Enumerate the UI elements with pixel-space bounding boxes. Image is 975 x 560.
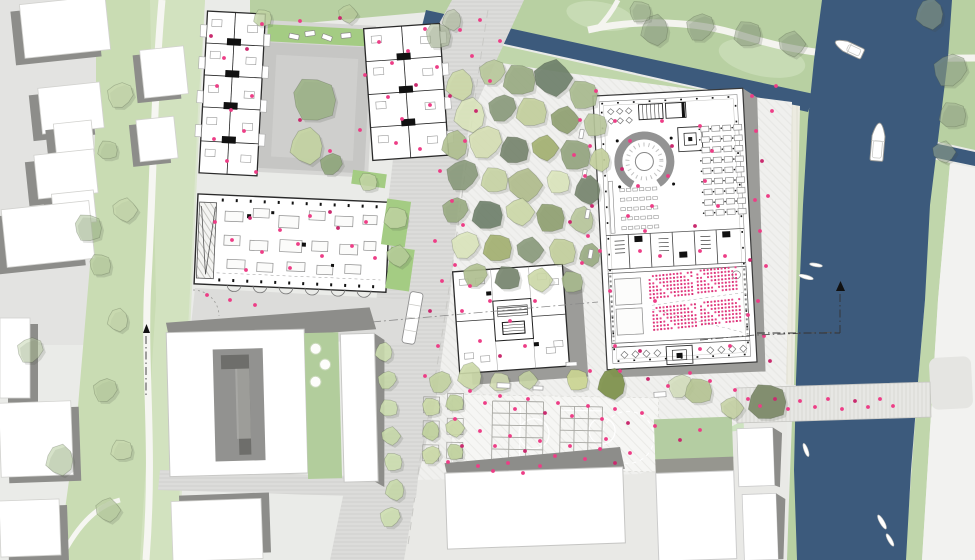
person-dot [498,394,502,398]
auditorium-seat [711,279,713,281]
auditorium-seat [721,300,723,302]
person-dot [428,309,432,313]
person-dot [733,388,737,392]
auditorium-seat [694,314,696,316]
person-dot [390,61,394,65]
person-dot [468,284,472,288]
auditorium-seat [667,324,669,326]
riverside-building-b [742,493,778,560]
person-dot [463,139,467,143]
person-dot [212,137,216,141]
auditorium-seat [649,279,651,281]
person-dot [660,119,664,123]
auditorium-seat [684,290,686,292]
auditorium-seat [700,270,702,272]
person-dot [213,220,217,224]
auditorium-seat [707,276,709,278]
auditorium-seat [718,282,720,284]
person-dot [468,389,472,393]
auditorium-seat [725,314,727,316]
auditorium-seat [721,310,723,312]
auditorium-seat [653,293,655,295]
person-dot [693,224,697,228]
market-hall [194,194,390,298]
person-dot [640,411,644,415]
auditorium-seat [729,288,731,290]
auditorium-seat [692,325,694,327]
person-dot [491,469,495,473]
auditorium-seat [701,291,703,293]
study-desk [701,137,709,143]
person-dot [373,256,377,260]
auditorium-seat [674,291,676,293]
auditorium-seat [663,285,665,287]
auditorium-seat [676,305,678,307]
bench [566,362,577,367]
person-dot [474,109,478,113]
person-dot [878,397,882,401]
auditorium-seat [684,286,686,288]
auditorium-seat [680,272,682,274]
auditorium-seat [704,284,706,286]
auditorium-seat [721,267,723,269]
study-desk [713,146,721,152]
person-dot [626,214,630,218]
study-desk [713,157,721,163]
auditorium-seat [656,278,658,280]
auditorium-seat [695,325,697,327]
cultural-building [593,88,772,380]
auditorium-seat [670,316,672,318]
person-dot [653,424,657,428]
auditorium-seat [684,311,686,313]
auditorium-seat [656,293,658,295]
auditorium-seat [715,318,717,320]
auditorium-seat [691,293,693,295]
person-dot [493,444,497,448]
auditorium-seat [666,309,668,311]
auditorium-seat [676,276,678,278]
auditorium-seat [704,312,706,314]
person-dot [414,83,418,87]
person-dot [336,226,340,230]
person-dot [750,94,754,98]
auditorium-seat [678,326,680,328]
auditorium-seat [696,277,698,279]
green-roof-lower [656,471,737,560]
auditorium-seat [725,321,727,323]
person-dot [453,263,457,267]
auditorium-seat [701,323,703,325]
person-dot [698,124,702,128]
auditorium-seat [687,279,689,281]
person-dot [568,220,572,224]
auditorium-seat [663,321,665,323]
auditorium-seat [724,303,726,305]
person-dot [583,174,587,178]
person-dot [670,144,674,148]
auditorium-seat [714,283,716,285]
person-dot [228,298,232,302]
auditorium-seat [735,309,737,311]
auditorium-seat [694,307,696,309]
study-desk [737,198,745,204]
person-dot [666,384,670,388]
auditorium-seat [697,284,699,286]
auditorium-seat [670,291,672,293]
auditorium-seat [681,323,683,325]
auditorium-seat [677,287,679,289]
auditorium-seat [688,325,690,327]
auditorium-seat [656,289,658,291]
auditorium-seat [711,322,713,324]
auditorium-seat [681,290,683,292]
person-dot [260,22,264,26]
auditorium-seat [734,266,736,268]
auditorium-seat [660,317,662,319]
person-dot [538,439,542,443]
auditorium-seat [653,318,655,320]
auditorium-seat [721,278,723,280]
auditorium-seat [708,290,710,292]
auditorium-seat [684,279,686,281]
auditorium-seat [677,291,679,293]
auditorium-seat [688,322,690,324]
person-dot [244,268,248,272]
auditorium-seat [704,323,706,325]
auditorium-seat [721,271,723,273]
auditorium-seat [696,273,698,275]
auditorium-seat [707,312,709,314]
auditorium-seat [663,292,665,294]
auditorium-seat [697,281,699,283]
auditorium-seat [714,311,716,313]
person-dot [604,437,608,441]
person-dot [506,461,510,465]
person-dot [253,303,257,307]
person-dot [423,374,427,378]
person-dot [613,119,617,123]
auditorium-seat [707,269,709,271]
person-dot [666,174,670,178]
auditorium-seat [667,327,669,329]
auditorium-seat [694,303,696,305]
person-dot [678,438,682,442]
study-desk [702,147,710,153]
auditorium-seat [652,314,654,316]
person-dot [708,379,712,383]
auditorium-seat [736,320,738,322]
person-dot [853,399,857,403]
person-dot [358,128,362,132]
auditorium-seat [700,305,702,307]
tree [423,398,441,415]
study-desk [714,167,722,173]
auditorium-seat [680,279,682,281]
roof-garden [304,332,342,479]
auditorium-seat [704,316,706,318]
auditorium-seat [736,316,738,318]
person-dot [553,454,557,458]
riverside-building-a [737,427,775,486]
person-dot [588,144,592,148]
auditorium-seat [660,296,662,298]
auditorium-seat [728,278,730,280]
auditorium-seat [688,293,690,295]
person-dot [296,242,300,246]
auditorium-seat [701,320,703,322]
auditorium-seat [731,270,733,272]
person-dot [698,428,702,432]
auditorium-seat [690,271,692,273]
auditorium-seat [703,301,705,303]
auditorium-seat [681,326,683,328]
auditorium-seat [653,325,655,327]
auditorium-seat [674,287,676,289]
person-dot [613,461,617,465]
study-desk [737,187,745,193]
auditorium-seat [649,290,651,292]
auditorium-seat [666,306,668,308]
person-dot [508,319,512,323]
person-dot [758,404,762,408]
tree [385,453,403,470]
person-dot [229,108,233,112]
auditorium-seat [714,300,716,302]
tree [570,81,598,108]
person-dot [840,407,844,411]
auditorium-seat [659,282,661,284]
auditorium-seat [718,311,720,313]
auditorium-seat [731,274,733,276]
auditorium-seat [670,281,672,283]
auditorium-seat [656,325,658,327]
person-dot [626,421,630,425]
study-desk [715,188,723,194]
auditorium-seat [659,310,661,312]
person-dot [298,19,302,23]
person-dot [433,239,437,243]
auditorium-seat [710,269,712,271]
auditorium-seat [715,290,717,292]
auditorium-seat [739,305,741,307]
tree [567,370,588,390]
study-desk [701,126,709,132]
person-dot [308,214,312,218]
auditorium-seat [729,321,731,323]
auditorium-seat [666,274,668,276]
auditorium-seat [677,323,679,325]
auditorium-seat [659,307,661,309]
auditorium-seat [703,273,705,275]
auditorium-seat [735,306,737,308]
person-dot [338,16,342,20]
auditorium-seat [684,319,686,321]
bench [533,386,543,390]
auditorium-seat [731,299,733,301]
auditorium-seat [663,310,665,312]
auditorium-seat [688,318,690,320]
person-dot [394,141,398,145]
person-dot [461,223,465,227]
person-dot [703,179,707,183]
person-dot [728,344,732,348]
auditorium-seat [660,292,662,294]
person-dot [764,264,768,268]
auditorium-seat [710,276,712,278]
auditorium-seat [674,295,676,297]
person-dot [578,118,582,122]
auditorium-seat [691,311,693,313]
person-dot [586,234,590,238]
study-desk [727,209,735,215]
person-dot [543,411,547,415]
study-desk [712,126,720,132]
person-dot [618,369,622,373]
auditorium-seat [687,311,689,313]
person-dot [746,397,750,401]
bench [497,383,510,388]
auditorium-seat [680,308,682,310]
parked-vehicle [341,33,351,39]
person-dot [710,149,714,153]
auditorium-seat [666,313,668,315]
person-dot [222,56,226,60]
person-dot [248,216,252,220]
study-desk [724,146,732,152]
person-dot [478,339,482,343]
study-desk [738,208,746,214]
auditorium-seat [739,309,741,311]
auditorium-seat [722,289,724,291]
auditorium-seat [673,284,675,286]
auditorium-seat [666,281,668,283]
person-dot [298,118,302,122]
person-dot [636,184,640,188]
person-dot [428,103,432,107]
person-dot [350,244,354,248]
context-building [171,498,263,560]
auditorium-seat [707,283,709,285]
auditorium-seat [718,279,720,281]
auditorium-seat [707,305,709,307]
auditorium-seat [707,301,709,303]
context-building [140,46,189,98]
auditorium-seat [649,286,651,288]
person-dot [476,464,480,468]
auditorium-seat [717,304,719,306]
person-dot [770,109,774,113]
person-dot [436,344,440,348]
person-dot [598,249,602,253]
auditorium-seat [697,288,699,290]
person-dot [588,369,592,373]
auditorium-seat [732,317,734,319]
person-dot [628,451,632,455]
auditorium-seat [681,319,683,321]
study-desk [723,125,731,131]
auditorium-seat [722,318,724,320]
auditorium-seat [728,274,730,276]
auditorium-seat [652,275,654,277]
auditorium-seat [673,280,675,282]
auditorium-seat [697,291,699,293]
auditorium-seat [738,298,740,300]
person-dot [423,27,427,31]
auditorium-seat [695,321,697,323]
auditorium-seat [708,315,710,317]
study-desk [702,158,710,164]
auditorium-seat [707,272,709,274]
person-dot [225,159,229,163]
study-desk [735,156,743,162]
auditorium-seat [708,319,710,321]
auditorium-seat [684,322,686,324]
auditorium-seat [739,316,741,318]
auditorium-seat [725,317,727,319]
person-dot [278,228,282,232]
auditorium-seat [687,307,689,309]
auditorium-seat [735,281,737,283]
auditorium-seat [728,285,730,287]
tree [75,215,101,241]
person-dot [458,28,462,32]
slab-roof [340,333,378,482]
auditorium-seat [690,275,692,277]
person-dot [723,254,727,258]
tree [584,114,607,136]
person-dot [488,79,492,83]
auditorium-seat [718,286,720,288]
person-dot [460,309,464,313]
person-dot [400,117,404,121]
auditorium-seat [732,281,734,283]
courtyard-block-sw [166,307,389,493]
auditorium-seat [725,307,727,309]
auditorium-seat [669,277,671,279]
person-dot [538,464,542,468]
auditorium-seat [691,289,693,291]
auditorium-seat [683,304,685,306]
person-dot [650,204,654,208]
auditorium-seat [732,284,734,286]
auditorium-seat [656,307,658,309]
person-dot [254,170,258,174]
auditorium-seat [656,285,658,287]
auditorium-seat [684,315,686,317]
person-dot [418,147,422,151]
auditorium-seat [656,321,658,323]
auditorium-seat [677,319,679,321]
auditorium-seat [714,279,716,281]
person-dot [364,220,368,224]
auditorium-seat [671,327,673,329]
auditorium-seat [718,307,720,309]
person-dot [250,94,254,98]
person-dot [638,249,642,253]
auditorium-seat [649,283,651,285]
person-dot [586,404,590,408]
person-dot [288,266,292,270]
auditorium-seat [677,309,679,311]
tree [630,2,651,22]
auditorium-seat [732,309,734,311]
auditorium-seat [721,314,723,316]
auditorium-seat [690,304,692,306]
person-dot [470,54,474,58]
auditorium-seat [680,283,682,285]
person-dot [230,238,234,242]
